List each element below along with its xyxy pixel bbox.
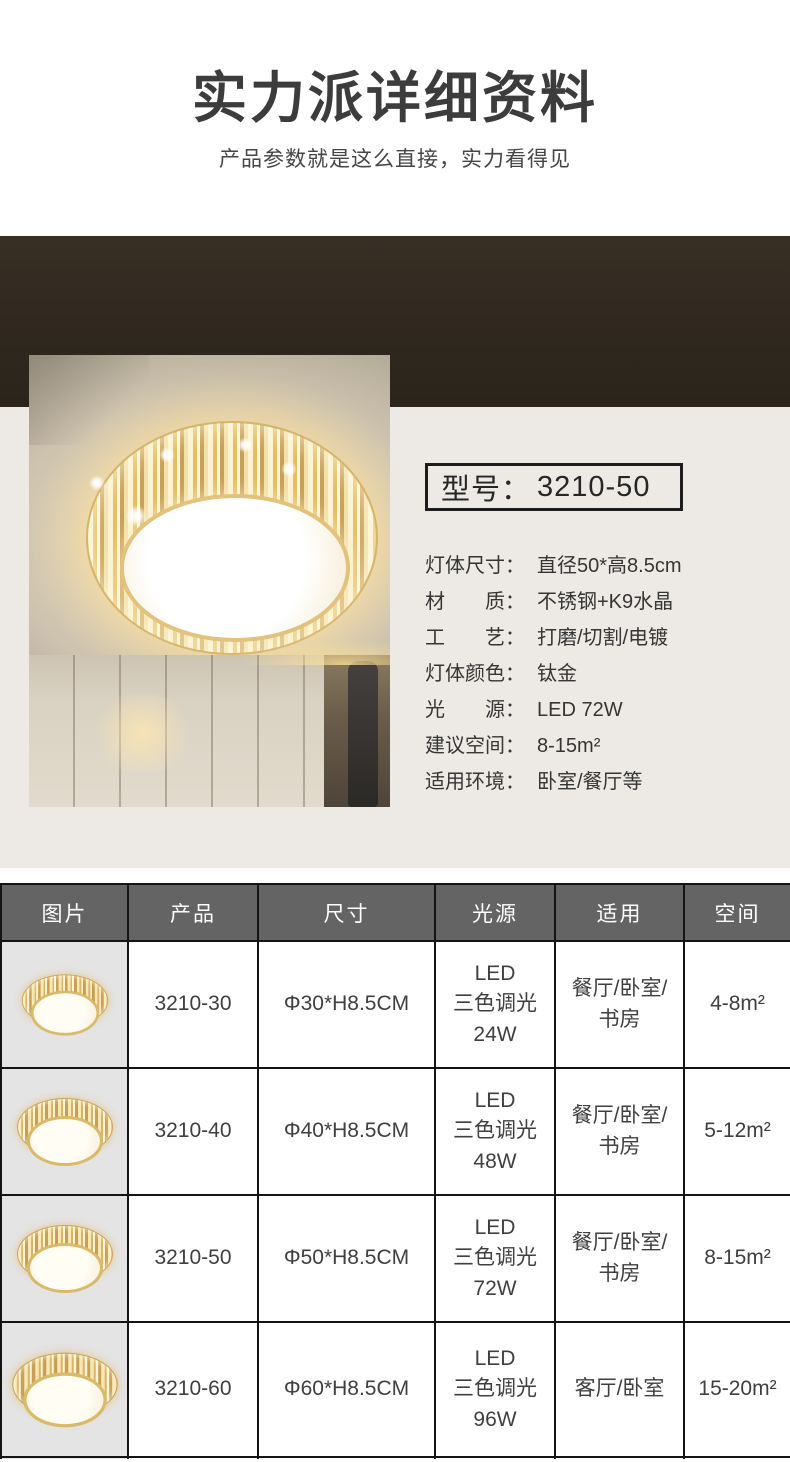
page-title: 实力派详细资料 xyxy=(0,0,790,133)
spec-row-color: 灯体颜色： 钛金 xyxy=(425,656,775,692)
lamp-thumbnail xyxy=(15,1094,115,1170)
page-header: 实力派详细资料 产品参数就是这么直接，实力看得见 xyxy=(0,0,790,236)
lamp-thumbnail xyxy=(15,1221,115,1297)
area-cell: 5-12m² xyxy=(684,1068,790,1195)
hero-section: 型号： 3210-50 灯体尺寸： 直径50*高8.5cm 材 质： 不锈钢+K… xyxy=(0,236,790,868)
sparkle-glint xyxy=(281,461,297,477)
spec-list: 灯体尺寸： 直径50*高8.5cm 材 质： 不锈钢+K9水晶 工 艺： 打磨/… xyxy=(425,548,775,800)
light-cell: LED 三色调光 48W xyxy=(435,1068,555,1195)
lamp-diffuser xyxy=(30,990,98,1035)
size-cell: Φ30*H8.5CM xyxy=(258,941,435,1068)
usage-cell: 客厅/卧室 xyxy=(555,1322,684,1457)
lamp-diffuser xyxy=(27,1116,103,1166)
lamp-diffuser xyxy=(23,1372,107,1427)
table-row: 3210-60 Φ60*H8.5CM LED 三色调光 96W 客厅/卧室 15… xyxy=(1,1322,790,1457)
wall-light-glow xyxy=(87,693,197,773)
spec-row-size: 灯体尺寸： 直径50*高8.5cm xyxy=(425,548,775,584)
table-row: 3210-40 Φ40*H8.5CM LED 三色调光 48W 餐厅/卧室/ 书… xyxy=(1,1068,790,1195)
table-row: 3210-30 Φ30*H8.5CM LED 三色调光 24W 餐厅/卧室/ 书… xyxy=(1,941,790,1068)
spec-panel: 型号： 3210-50 灯体尺寸： 直径50*高8.5cm 材 质： 不锈钢+K… xyxy=(425,463,775,800)
product-image-cell xyxy=(1,1195,128,1322)
wardrobe xyxy=(29,655,390,807)
header-cell-area: 空间 xyxy=(684,884,790,941)
cove-light-glow xyxy=(240,639,390,665)
size-cell: Φ60*H8.5CM xyxy=(258,1322,435,1457)
header-cell-size: 尺寸 xyxy=(258,884,435,941)
model-label: 型号： xyxy=(441,466,531,508)
sparkle-glint xyxy=(89,475,105,491)
product-cell: 3210-30 xyxy=(128,941,258,1068)
product-photo xyxy=(29,355,390,807)
table-row: 3210-50 Φ50*H8.5CM LED 三色调光 72W 餐厅/卧室/ 书… xyxy=(1,1195,790,1322)
product-detail-page: 实力派详细资料 产品参数就是这么直接，实力看得见 xyxy=(0,0,790,1462)
lamp-diffuser xyxy=(27,1243,103,1293)
usage-cell: 餐厅/卧室/ 书房 xyxy=(555,941,684,1068)
area-cell: 8-15m² xyxy=(684,1195,790,1322)
spec-row-space: 建议空间： 8-15m² xyxy=(425,728,775,764)
lamp-diffuser xyxy=(120,494,350,641)
header-cell-light: 光源 xyxy=(435,884,555,941)
spec-row-material: 材 质： 不锈钢+K9水晶 xyxy=(425,584,775,620)
spec-row-environment: 适用环境： 卧室/餐厅等 xyxy=(425,764,775,800)
sparkle-glint xyxy=(237,437,253,453)
product-cell: 3210-50 xyxy=(128,1195,258,1322)
spec-row-lightsource: 光 源： LED 72W xyxy=(425,692,775,728)
ceiling-shadow xyxy=(29,355,149,445)
product-comparison-table: 图片 产品 尺寸 光源 适用 空间 3210-30 Φ30*H8.5CM LED… xyxy=(0,883,790,1459)
sparkle-glint xyxy=(159,447,175,463)
lamp-thumbnail xyxy=(20,970,110,1038)
area-cell: 15-20m² xyxy=(684,1322,790,1457)
product-image-cell xyxy=(1,1068,128,1195)
header-cell-usage: 适用 xyxy=(555,884,684,941)
size-cell: Φ40*H8.5CM xyxy=(258,1068,435,1195)
usage-cell: 餐厅/卧室/ 书房 xyxy=(555,1195,684,1322)
header-cell-image: 图片 xyxy=(1,884,128,941)
product-image-cell xyxy=(1,1322,128,1457)
header-cell-product: 产品 xyxy=(128,884,258,941)
model-number-box: 型号： 3210-50 xyxy=(425,463,683,511)
product-cell: 3210-60 xyxy=(128,1322,258,1457)
usage-cell: 餐厅/卧室/ 书房 xyxy=(555,1068,684,1195)
table-row-cutoff xyxy=(1,1457,790,1459)
table-header-row: 图片 产品 尺寸 光源 适用 空间 xyxy=(1,884,790,941)
closet-interior xyxy=(324,655,390,807)
lamp-thumbnail xyxy=(10,1348,120,1432)
light-cell: LED 三色调光 72W xyxy=(435,1195,555,1322)
product-cell: 3210-40 xyxy=(128,1068,258,1195)
sparkle-glint xyxy=(125,505,147,527)
product-image-cell xyxy=(1,941,128,1068)
area-cell: 4-8m² xyxy=(684,941,790,1068)
lamp-crystal-ring xyxy=(86,421,378,655)
size-cell: Φ50*H8.5CM xyxy=(258,1195,435,1322)
light-cell: LED 三色调光 24W xyxy=(435,941,555,1068)
page-subtitle: 产品参数就是这么直接，实力看得见 xyxy=(0,143,790,173)
hanging-garment xyxy=(348,661,378,807)
model-value: 3210-50 xyxy=(537,471,650,504)
spec-row-craft: 工 艺： 打磨/切割/电镀 xyxy=(425,620,775,656)
light-cell: LED 三色调光 96W xyxy=(435,1322,555,1457)
